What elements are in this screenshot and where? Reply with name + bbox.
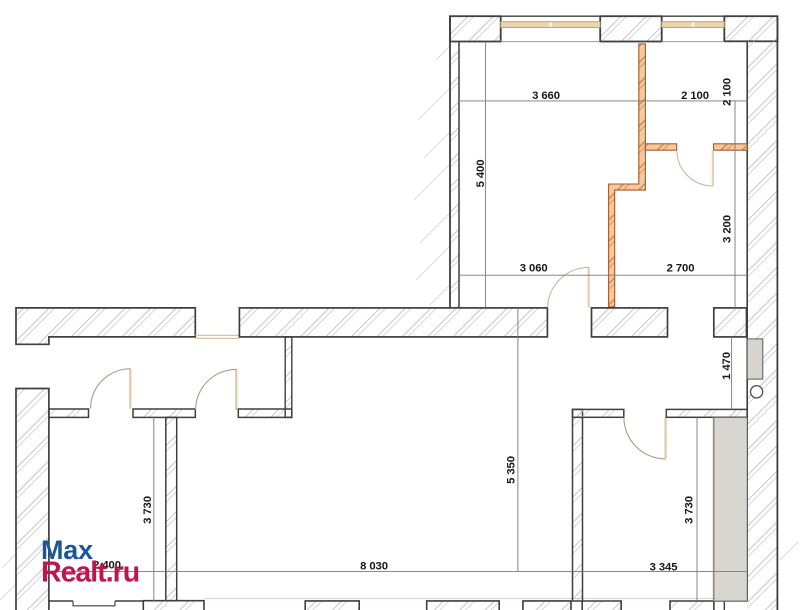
svg-text:8 030: 8 030 [360, 561, 388, 573]
svg-text:2 100: 2 100 [722, 78, 734, 106]
svg-text:Realt.ru: Realt.ru [41, 557, 139, 589]
svg-text:1 470: 1 470 [721, 352, 733, 380]
svg-text:3 060: 3 060 [520, 263, 548, 275]
svg-text:3 345: 3 345 [650, 562, 678, 574]
svg-text:5 350: 5 350 [506, 456, 518, 484]
svg-text:3 730: 3 730 [142, 496, 154, 524]
svg-text:2 100: 2 100 [681, 90, 709, 102]
svg-text:3 660: 3 660 [532, 90, 560, 102]
svg-text:5 400: 5 400 [475, 160, 487, 188]
svg-text:3 730: 3 730 [684, 496, 696, 524]
svg-text:2 700: 2 700 [667, 263, 695, 275]
svg-text:3 200: 3 200 [722, 215, 734, 243]
